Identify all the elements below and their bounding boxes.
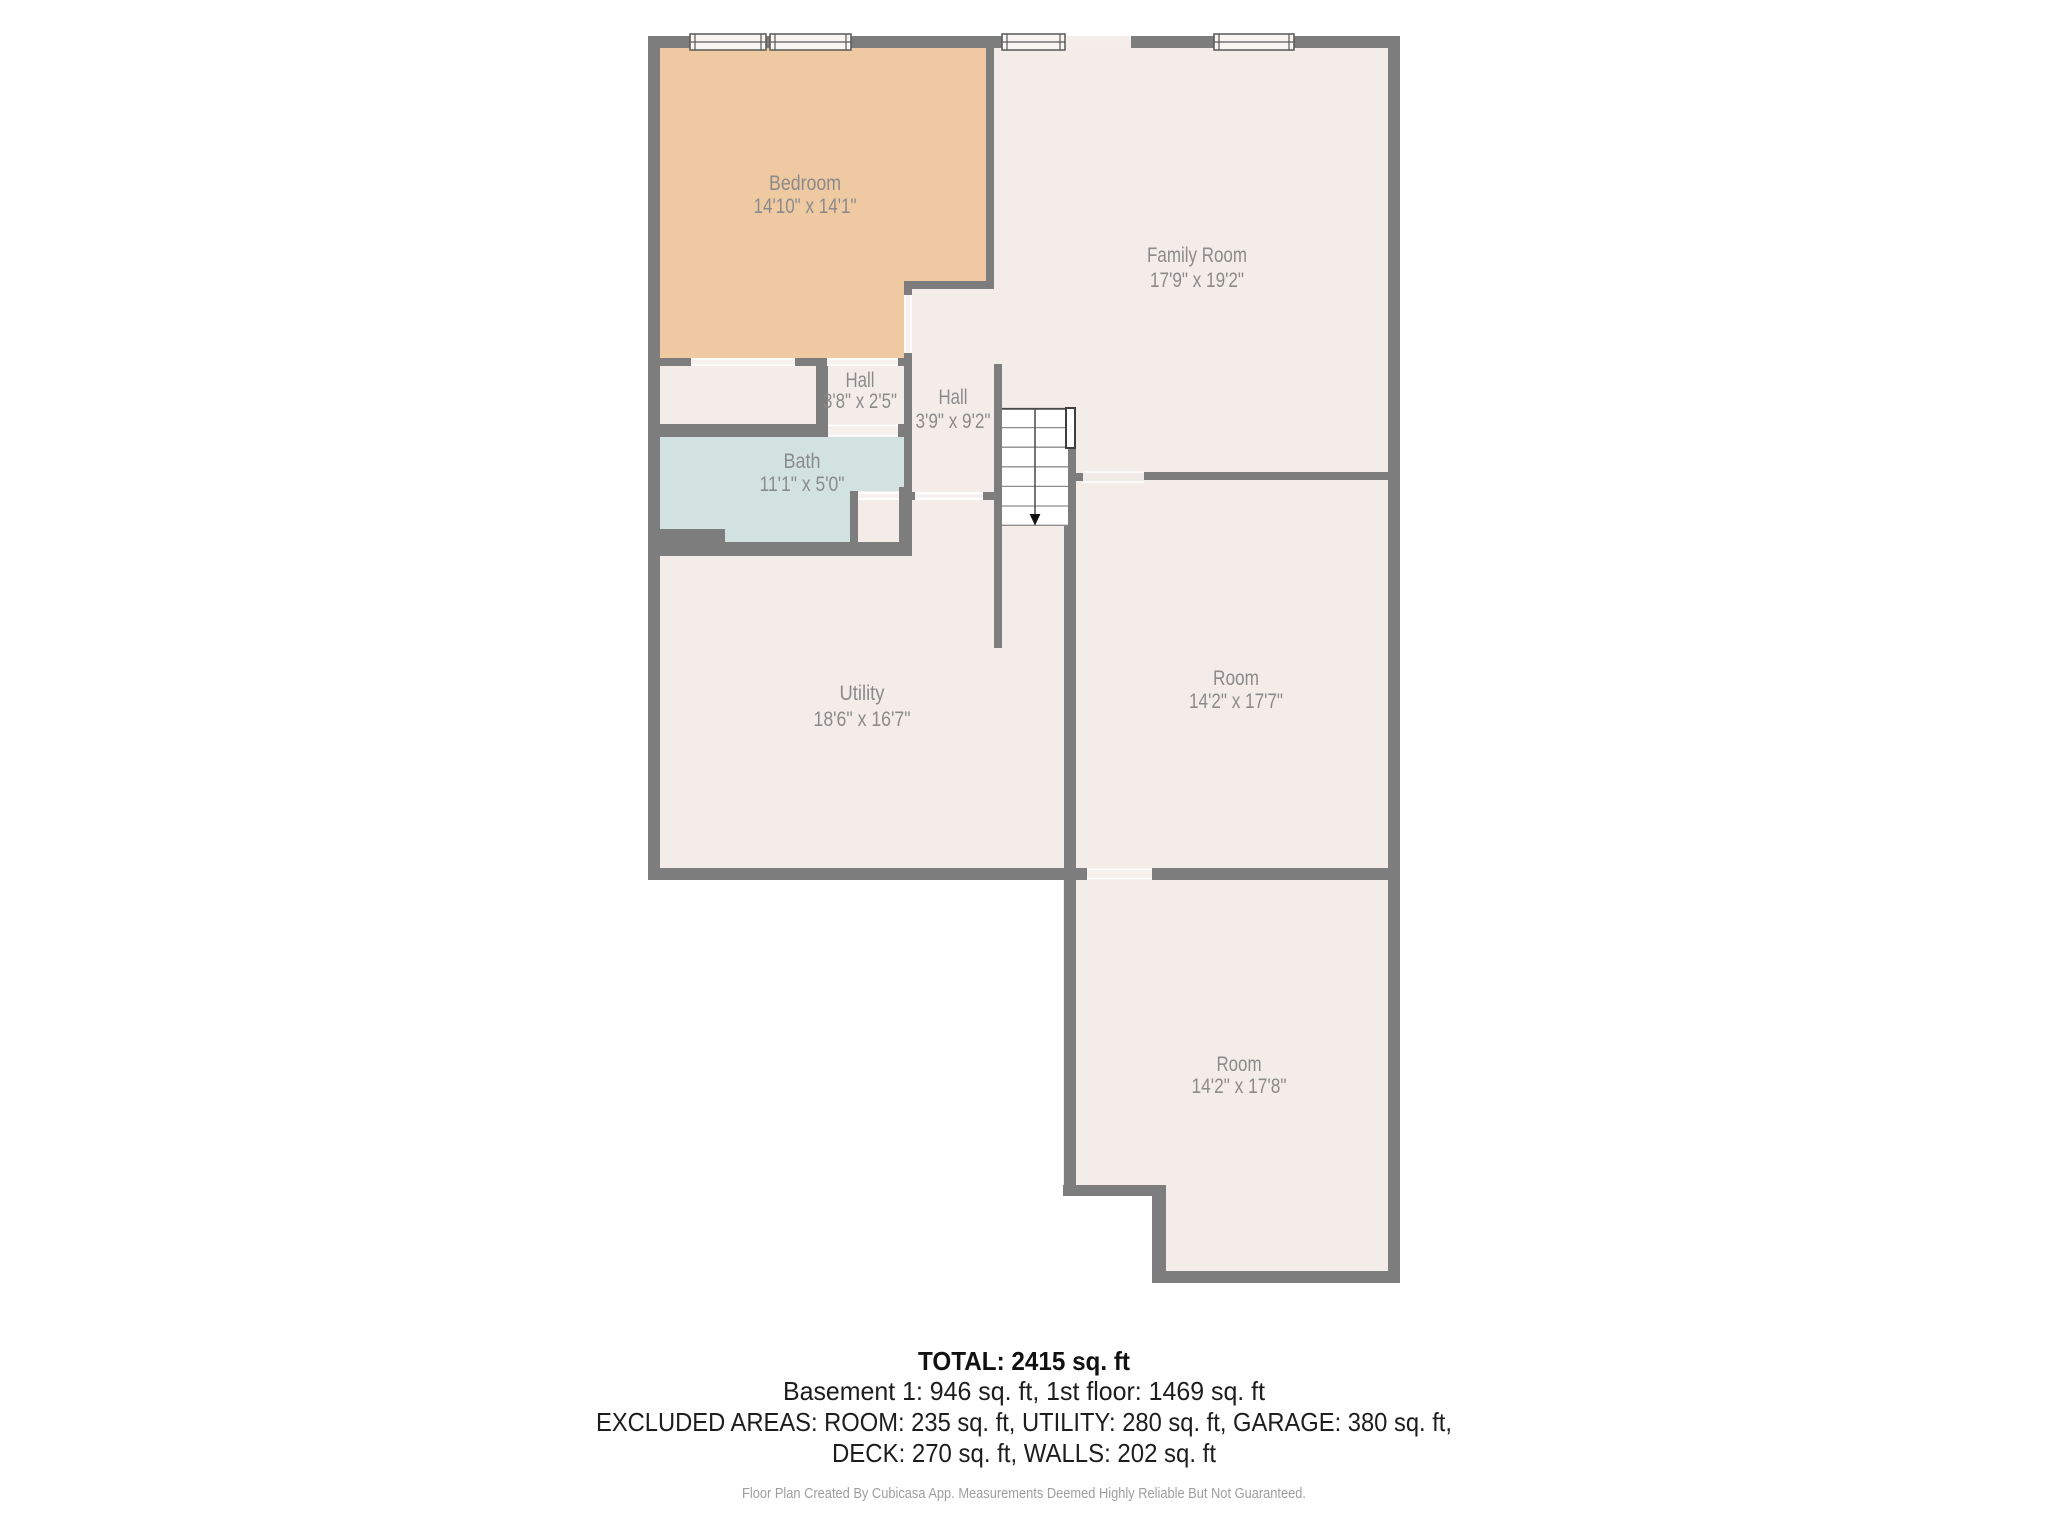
svg-text:Family Room: Family Room <box>1147 244 1247 267</box>
svg-text:17'9" x 19'2": 17'9" x 19'2" <box>1150 269 1244 292</box>
svg-text:Basement 1: 946 sq. ft, 1st fl: Basement 1: 946 sq. ft, 1st floor: 1469 … <box>783 1376 1266 1406</box>
svg-text:Room: Room <box>1213 667 1259 690</box>
svg-text:Room: Room <box>1217 1053 1262 1076</box>
svg-text:Hall: Hall <box>846 369 875 392</box>
svg-text:14'2" x 17'7": 14'2" x 17'7" <box>1189 690 1283 713</box>
svg-text:Bedroom: Bedroom <box>769 172 841 195</box>
svg-text:11'1" x 5'0": 11'1" x 5'0" <box>760 473 845 496</box>
svg-text:Bath: Bath <box>784 450 821 473</box>
svg-text:Utility: Utility <box>840 682 885 705</box>
svg-text:14'2" x 17'8": 14'2" x 17'8" <box>1192 1075 1287 1098</box>
svg-text:DECK: 270 sq. ft, WALLS: 202 s: DECK: 270 sq. ft, WALLS: 202 sq. ft <box>832 1438 1217 1468</box>
svg-text:Hall: Hall <box>939 386 968 409</box>
svg-text:Floor Plan Created By Cubicasa: Floor Plan Created By Cubicasa App. Meas… <box>742 1485 1306 1502</box>
svg-text:EXCLUDED AREAS: ROOM: 235 sq.: EXCLUDED AREAS: ROOM: 235 sq. ft, UTILIT… <box>596 1407 1452 1437</box>
svg-text:18'6" x 16'7": 18'6" x 16'7" <box>814 708 911 731</box>
svg-text:3'8" x 2'5": 3'8" x 2'5" <box>823 390 897 413</box>
svg-text:3'9" x 9'2": 3'9" x 9'2" <box>916 410 991 433</box>
svg-text:TOTAL: 2415 sq. ft: TOTAL: 2415 sq. ft <box>918 1346 1130 1376</box>
svg-text:14'10" x 14'1": 14'10" x 14'1" <box>754 195 857 218</box>
